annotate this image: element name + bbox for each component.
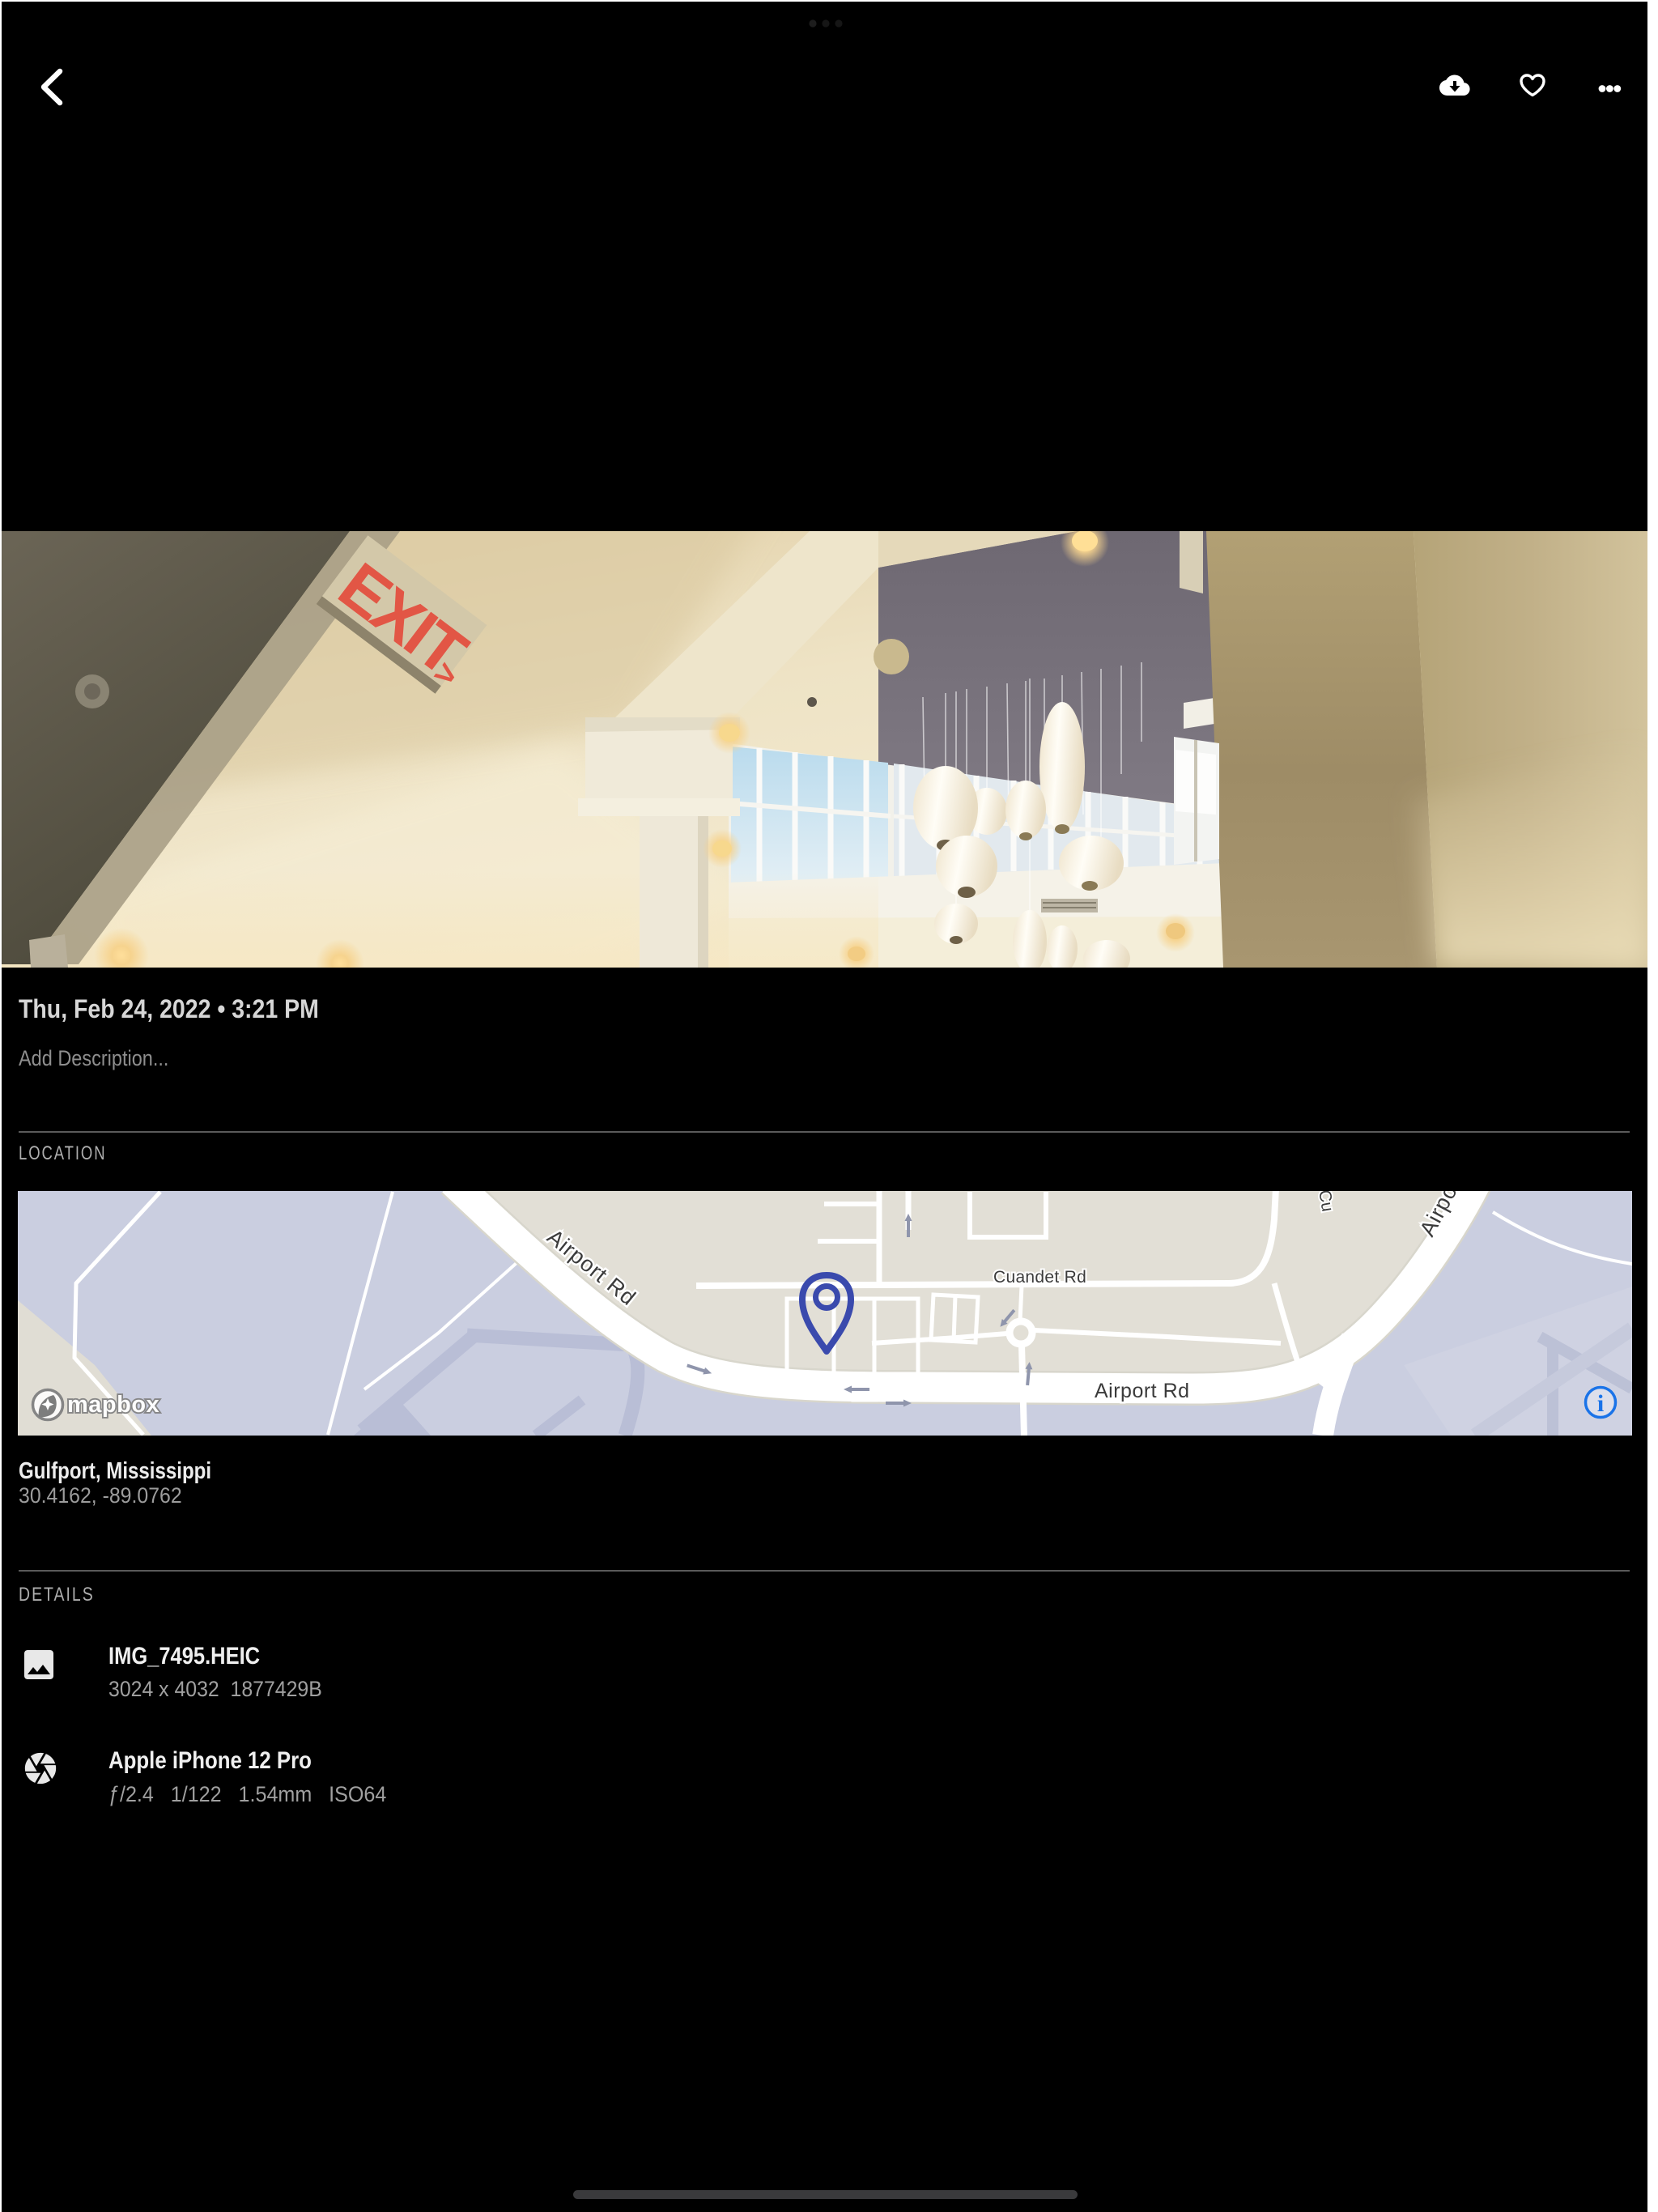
svg-text:Cuandet Rd: Cuandet Rd bbox=[993, 1268, 1086, 1287]
svg-text:mapbox: mapbox bbox=[67, 1392, 159, 1418]
svg-text:Airport Rd: Airport Rd bbox=[1095, 1380, 1190, 1402]
svg-text:i: i bbox=[1597, 1390, 1604, 1417]
svg-text:Cu: Cu bbox=[1315, 1191, 1337, 1213]
